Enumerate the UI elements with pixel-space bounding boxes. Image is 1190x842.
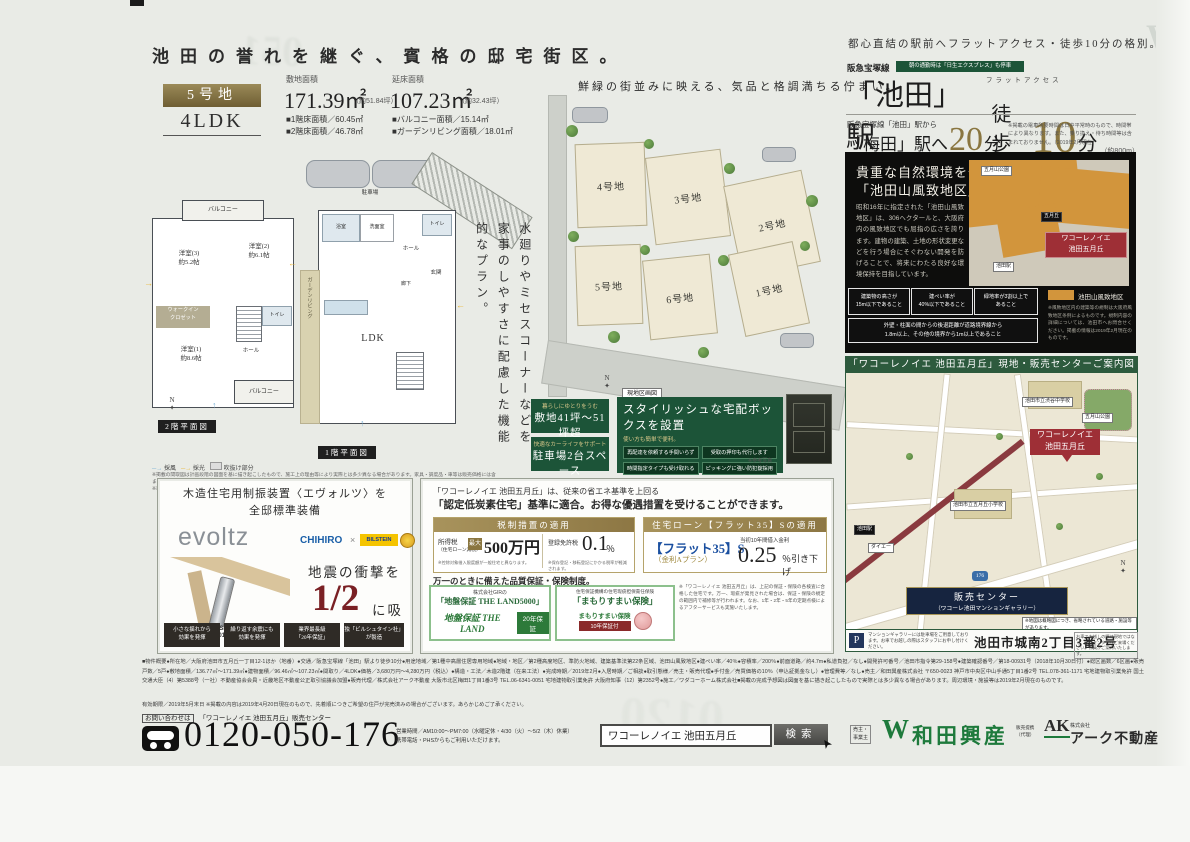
tax-header: 税制措置の適用: [434, 518, 634, 532]
tax-deduction-value: 500万円: [484, 534, 540, 558]
flat35-suffix: ％引き下げ: [782, 552, 826, 578]
fuchi-legend-swatch: [1048, 290, 1074, 300]
flat35-plan: （金利Aプラン）: [654, 554, 712, 565]
collab-x: ×: [350, 535, 355, 545]
compass-siteplan: N✦: [598, 374, 616, 390]
scan-artifact: [130, 0, 144, 6]
floorplan-2f-label: 2階平面図: [158, 420, 216, 433]
evoltz-title: 木造住宅用制振装置〈エヴォルツ〉を 全邸標準装備: [158, 486, 412, 519]
flat35-box: 住宅ローン【フラット35】Sの適用 【フラット35】S （金利Aプラン） 当初1…: [643, 517, 827, 573]
evoltz-panel: 木造住宅用制振装置〈エヴォルツ〉を 全邸標準装備 evoltz CHIHIRO …: [157, 478, 413, 654]
feature-banner-parking: 快適なカーライフをサポート 駐車場2台スペース: [531, 437, 609, 471]
siteplan-lot-4: 4号地: [575, 142, 648, 228]
registration-tax-value: 0.1: [582, 531, 608, 556]
parking-icon: P: [849, 633, 864, 648]
siteplan-lot-6: 6号地: [642, 254, 718, 341]
map-label-daiei: ダイエー: [868, 543, 894, 553]
flat35-header: 住宅ローン【フラット35】Sの適用: [644, 518, 826, 532]
search-input[interactable]: [600, 724, 772, 747]
hall: ホール: [236, 348, 266, 355]
compass-2f: N✦: [162, 396, 182, 412]
hall: ホール: [396, 246, 426, 253]
room-2f-1: 洋室(1) 約8.6帖: [160, 346, 222, 364]
fuchi-rule-2: 建ぺい率が 40%以下であること: [911, 288, 973, 315]
guide-map: 五月山公園 池田市立渋谷中学校 池田市立五月丘小学校 ダイエー 池田駅 176 …: [846, 373, 1137, 629]
plan-legend: ─→ 採風 ─→ 採光 吹抜け部分: [152, 462, 254, 472]
page-margin-bottom: [0, 766, 1190, 842]
shock-fraction: 1/2: [312, 577, 359, 620]
entrance: 玄関: [422, 270, 450, 277]
floorplan-1f-label: 1階平面図: [318, 446, 376, 459]
umeda-minutes: 20: [949, 126, 983, 155]
car-illustration: [306, 160, 370, 188]
siteplan-lot-3: 3号地: [645, 149, 731, 246]
divider: [846, 114, 1136, 115]
seller-role-label: 売主・ 事業主: [850, 725, 871, 744]
light-arrow: ←: [288, 258, 297, 268]
photo-note: ※参考写真: [748, 457, 772, 464]
warranty-20y-badge: 20年保証: [517, 612, 549, 634]
evoltz-point: 繰り返す余震にも 効果を発揮: [224, 623, 280, 647]
toilet: トイレ: [422, 214, 452, 236]
carbon-lead2: 「認定低炭素住宅」基準に適合。お得な優遇措置を受けることができます。: [433, 497, 789, 512]
max-badge: 最大: [468, 538, 482, 550]
umeda-note: ※掲載の電車所要時間は日中平常時のもので、時間帯により異なります。また、乗り換え…: [1008, 122, 1136, 147]
damper-photo: [170, 557, 290, 627]
delivery-box-photo: [786, 394, 832, 464]
light-arrow: →: [144, 278, 153, 288]
map-label-junior-high: 池田市立渋谷中学校: [1022, 397, 1073, 407]
car-illustration: [762, 147, 796, 162]
floorplan-1f: 駐車場 ガーデンリビング 浴室 洗面室 トイレ ホール 玄関 廊下 LDK ← …: [300, 150, 475, 445]
ark-fudosan-logo: アーク不動産: [1070, 728, 1159, 748]
mamori-mascot-icon: [634, 612, 652, 630]
wada-kosan-logo: 和田興産: [912, 720, 1008, 750]
wind-arrow: ↑: [212, 400, 217, 410]
delivery-sub: 使い方も簡単で便利。: [623, 435, 777, 443]
defect-insurance-box: 住宅保証機構の住宅瑕疵担保責任保険 「まもりすまい保険」 まもりすまい保険 10…: [555, 585, 675, 641]
area-detail-3: ■バルコニー面積／15.14㎡: [392, 114, 489, 125]
bilstein-logo: BILSTEIN: [360, 534, 398, 546]
warranty-note: ※「ワコーレノイエ 池田五月丘」は、上記の保証・保険の各検査に合格した住宅です。…: [679, 583, 825, 611]
phone-number: 0120-050-176: [184, 713, 400, 755]
flyer-page: 051 0120 W 池田の誉れを継ぐ、賓格の邸宅街区。 5号地 4LDK 敷地…: [0, 0, 1190, 842]
parking: 駐車場: [340, 190, 400, 197]
map-label-elementary: 池田市立五月丘小学校: [950, 501, 1006, 511]
carbon-lead1: 「ワコーレノイエ 池田五月丘」は、従来の省エネ基準を上回る: [433, 486, 659, 497]
lot-number-badge: 5号地: [163, 84, 261, 107]
map-chip: 池田駅: [993, 262, 1014, 272]
area-detail-4: ■ガーデンリビング面積／18.01㎡: [392, 126, 513, 137]
flat35-value: 0.25: [738, 542, 777, 568]
page-title: 池田の誉れを継ぐ、賓格の邸宅街区。: [152, 42, 628, 67]
balcony: バルコニー: [234, 380, 294, 404]
fuchi-rule-1: 建築物の高さが 15m以下であること: [848, 288, 910, 315]
delivery-point: 再配達を依頼する手間いらず: [623, 446, 699, 459]
floor-area-note: （約32.43坪）: [458, 96, 504, 106]
corridor: 廊下: [392, 282, 420, 289]
siteplan: 4号地 3号地 2号地 5号地 6号地 1号地: [548, 95, 840, 397]
address-bar: P マンションギャラリーには駐車場をご用意しております。お車でお越しの際はスタッ…: [846, 629, 1137, 651]
umeda-line: 「梅田」駅へ 20 分: [846, 126, 1001, 155]
fuchi-panel: 貴重な自然環境を守る 「池田山風致地区」。 昭和16年に指定された「池田山風致地…: [845, 152, 1136, 353]
wada-kosan-mark: W: [882, 714, 909, 745]
tax-benefit-box: 税制措置の適用 所得税（住宅ローン減税） 最大 500万円 ※控除対象借入限度額…: [433, 517, 635, 573]
plan-copy-vertical: 水廻りやミセスコーナーなどを家事のしやすさに配慮した機能的なプラン。: [470, 222, 535, 458]
evoltz-logo: evoltz: [178, 523, 249, 552]
guide-map-header: 「ワコーレノイエ 池田五月丘」現地・販売センターご案内図: [846, 357, 1137, 373]
fuchi-map-marker: ワコーレノイエ 池田五月丘: [1045, 232, 1127, 258]
map-label-station: 池田駅: [854, 525, 875, 535]
room-2f-2: 洋室(2) 約6.1帖: [230, 243, 288, 261]
delivery-title: スタイリッシュな宅配ボックスを設置: [623, 401, 777, 433]
light-arrow: ←: [456, 300, 465, 310]
rail-line-badge: 朝の通勤時は「日生エクスプレス」も停車: [896, 61, 1024, 72]
visit-note: お車でお越しの際は現地ではなく、販売センターへご来場ください。係員がご案内いたし…: [1074, 632, 1138, 659]
access-lead: 都心直結の駅前へフラットアクセス・徒歩10分の格別。: [848, 36, 1162, 51]
route-shield: 176: [972, 571, 988, 581]
fuchi-rule-setback: 外壁・柱面の間からの後退距離が道路境界線から 1.8m以上、その他の境界から1m…: [848, 318, 1038, 343]
fuchi-map: 五月山公園 五月丘 池田駅 ワコーレノイエ 池田五月丘: [969, 160, 1129, 286]
delivery-point: 時間指定タイプも受け取れる: [623, 462, 699, 475]
parking-note: マンションギャラリーには駐車場をご用意しております。お車でお越しの際はスタッフに…: [868, 632, 972, 650]
compass-guide-map: N✦: [1114, 559, 1132, 575]
toilet: トイレ: [262, 306, 292, 326]
kitchen-counter: [324, 300, 368, 315]
wind-arrow: ↑: [360, 418, 365, 428]
walk-in-closet: ウォークイン クロゼット: [156, 306, 210, 328]
the-land-logo: 地盤保証 THE LAND: [431, 611, 514, 634]
washroom: 洗面室: [360, 214, 394, 242]
balcony: バルコニー: [182, 200, 264, 221]
map-label-park: 五月山公園: [1082, 413, 1113, 423]
map-chip: 五月山公園: [981, 166, 1012, 176]
car-illustration: [572, 107, 608, 123]
guide-map-note: ※地図は概略図につき、省略されている道路・施設等があります。: [1022, 617, 1137, 629]
site-marker: ワコーレノイエ 池田五月丘: [1030, 429, 1100, 455]
warranty-10y-badge: 10年保証付: [579, 621, 631, 631]
evoltz-point: 業界最長級 「20年保証」: [284, 623, 340, 647]
chihiro-logo: CHIHIRO: [300, 535, 342, 546]
low-carbon-panel: 「ワコーレノイエ 池田五月丘」は、従来の省エネ基準を上回る 「認定低炭素住宅」基…: [420, 478, 834, 654]
room-2f-3: 洋室(3) 約5.2帖: [160, 250, 218, 268]
agent-role-label: 販売提携 （代理）: [1016, 725, 1034, 739]
fuchi-rule-3: 緑地率が3割以上で あること: [974, 288, 1038, 315]
freedial-icon: [142, 726, 179, 751]
fuchi-legend-note: ※風致地区内の建築等の規制は大阪府風致地区条例によるものです。規制内容の詳細につ…: [1048, 304, 1132, 342]
property-outline-legal: ■物件概要●所在地／大阪府池田市五月丘一丁目12-1ほか（地番）●交通／阪急宝塚…: [142, 658, 1144, 687]
sales-center-marker: 販売センター （ワコーレ池田マンションギャラリー）: [906, 587, 1068, 615]
lot-layout: 4LDK: [163, 110, 261, 136]
garden-living: ガーデンリビング: [300, 270, 320, 424]
bathroom: 浴室: [322, 214, 360, 242]
map-chip: 五月丘: [1041, 212, 1062, 222]
evoltz-point: 小さな揺れから 効果を発揮: [164, 623, 220, 647]
stairs: [236, 306, 262, 342]
guide-map-panel: 「ワコーレノイエ 池田五月丘」現地・販売センターご案内図 五月山公園 池田市立渋…: [845, 356, 1138, 652]
ark-mark: AK: [1044, 716, 1070, 738]
stairs: [396, 352, 424, 390]
site-marker-pointer: [1062, 455, 1072, 462]
floorplan-2f: バルコニー 洋室(2) 約6.1帖 洋室(3) 約5.2帖 ウォークイン クロゼ…: [152, 188, 302, 423]
tax-note: ※控除対象借入限度額が一般住宅と異なります。: [438, 560, 538, 566]
siteplan-lot-5: 5号地: [575, 244, 644, 326]
area-detail-2: ■2階床面積／46.78㎡: [286, 126, 363, 137]
page-edge: [1156, 0, 1190, 842]
area-detail-1: ■1階床面積／60.45㎡: [286, 114, 363, 125]
ground-warranty-box: 株式会社GIRの 「地盤保証 THE LAND5000」 地盤保証 THE LA…: [429, 585, 551, 641]
legal-expiry-line: 有効期限／2019年5月末日 ※掲載の内容は2019年4月20日現在のもので、先…: [142, 700, 1144, 708]
tax-note: ※保存登記・移転登記にかかる税率が軽減されます。: [548, 560, 630, 572]
car-illustration: [780, 333, 814, 348]
ldk: LDK: [348, 332, 398, 346]
mamori-logo: まもりすまい保険: [579, 610, 631, 620]
feature-banner-site: 暮らしにゆとりをうむ 敷地41坪〜51坪超: [531, 399, 609, 433]
fuchi-body: 昭和16年に指定された「池田山風致地区」は、306ヘクタールと、大阪府内の風致地…: [856, 202, 964, 280]
evoltz-point: 独「ビルシュタイン社」 が製造: [344, 623, 404, 647]
mascot-icon: [400, 533, 415, 548]
business-hours: 営業時間／AM10:00〜PM7:00（水曜定休・4/30（火）〜5/2（木）休…: [396, 728, 592, 745]
fuchi-legend-label: 池田山風致地区: [1078, 291, 1124, 301]
